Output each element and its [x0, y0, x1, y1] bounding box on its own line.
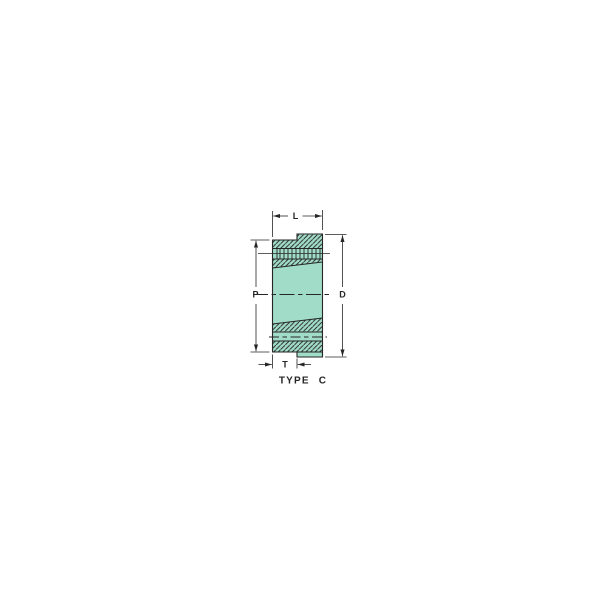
type-c-cross-section-drawing: L P D T TYPE C — [0, 0, 600, 600]
dim-label-t: T — [282, 359, 288, 369]
dim-label-d: D — [339, 289, 346, 299]
dim-label-p: P — [252, 289, 258, 299]
drawing-root: L P D T TYPE C — [251, 210, 347, 387]
dim-label-l: L — [293, 211, 299, 221]
hatch-top-band — [273, 234, 323, 249]
drawing-canvas: L P D T TYPE C — [0, 0, 600, 600]
hatch-bottom-band — [273, 341, 323, 352]
figure-caption: TYPE C — [279, 376, 327, 387]
